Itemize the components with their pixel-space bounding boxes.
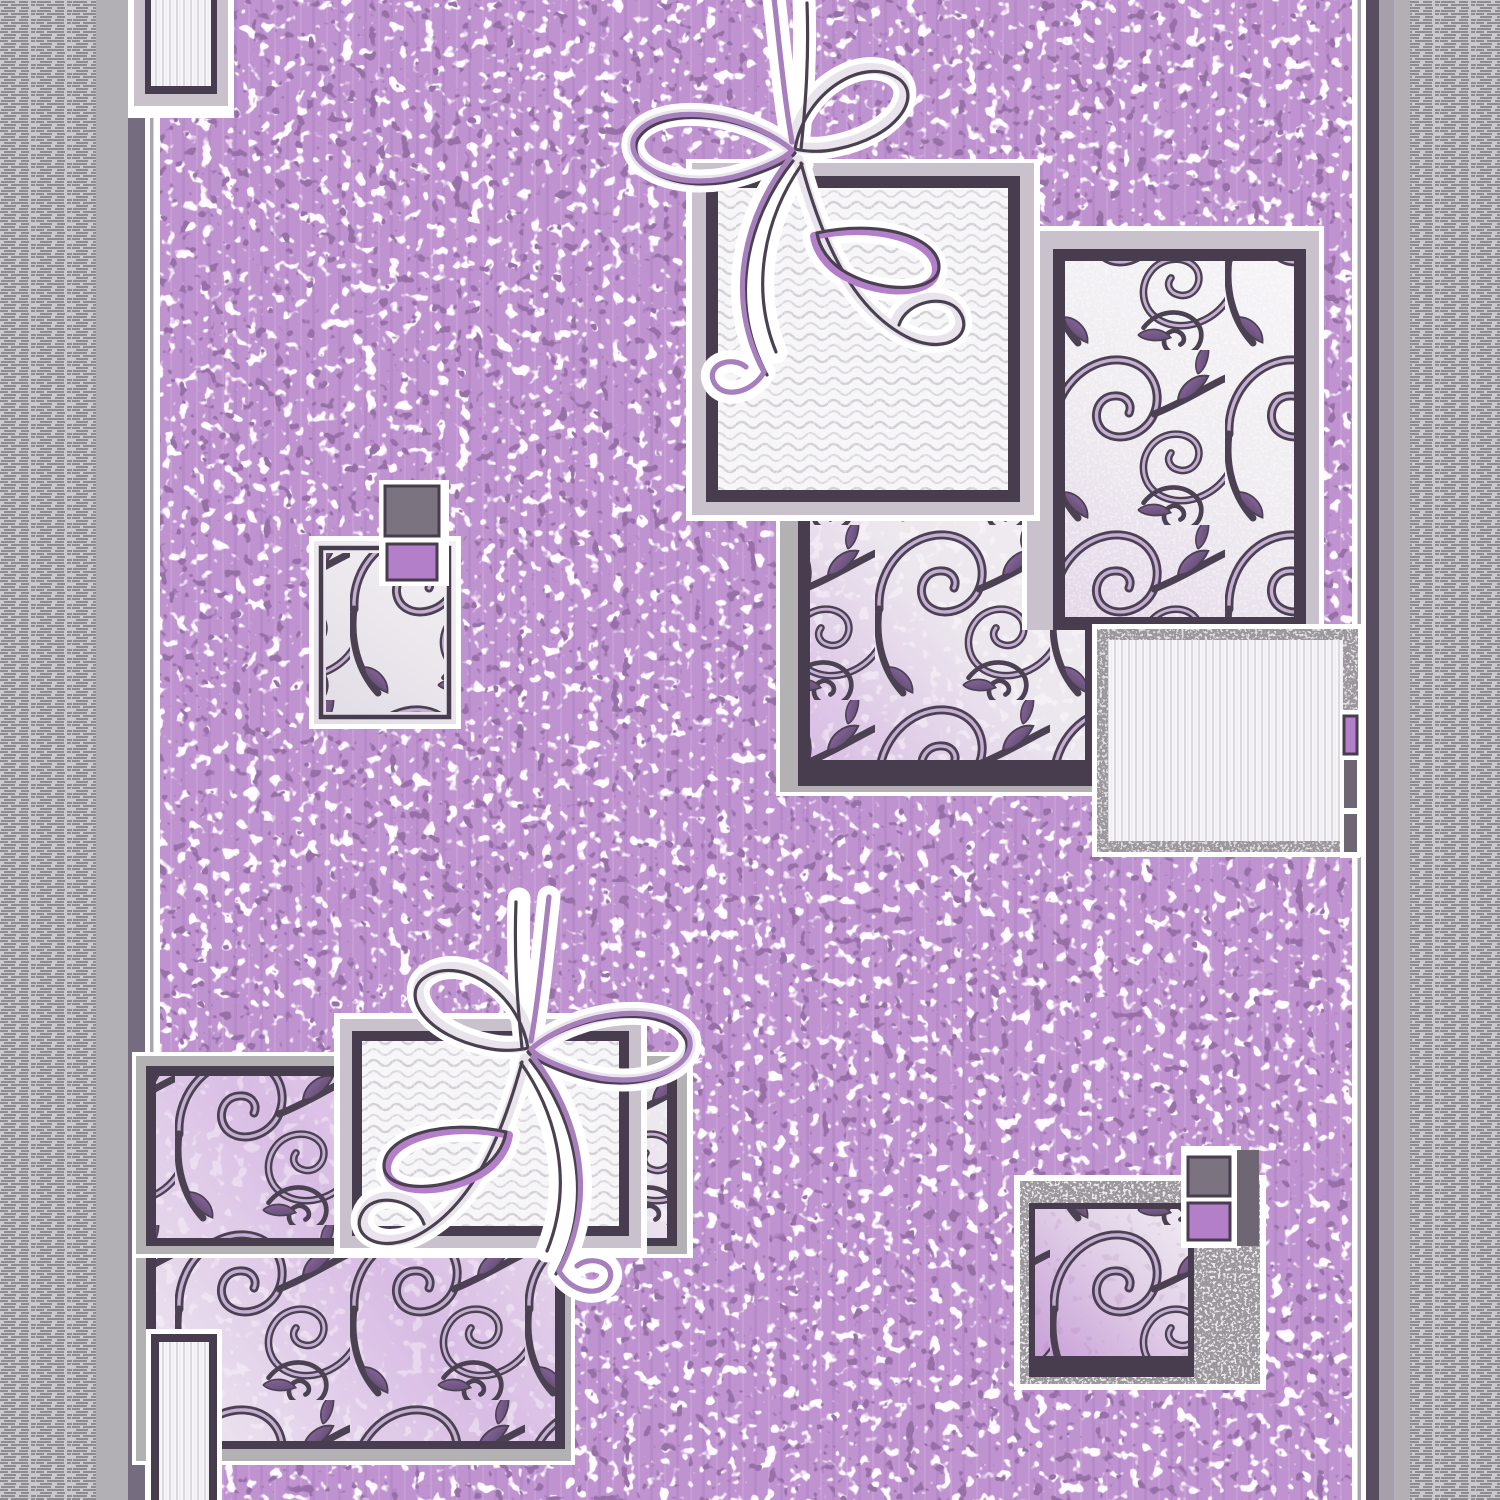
right-border [1352,0,1500,1500]
top-left-striped-square [128,0,234,118]
accent-purple-square [1188,1203,1230,1240]
right-frame-tabs [1340,710,1360,858]
right-striped-square [1092,624,1363,858]
right-border-lavender-stripe [1379,0,1394,1500]
right-border-plain-band [1394,0,1410,1500]
carpet-artwork [0,0,1500,1500]
top-right-scroll-square [1022,226,1324,630]
bottom-right-scroll-square [1014,1146,1266,1390]
bottom-left-striped-band [146,1329,222,1500]
accent-gray-square [1188,1157,1230,1196]
accent-squares-bottom-right [1181,1146,1259,1248]
right-border-dark-stripe [1366,0,1379,1500]
accent-purple-square [387,544,437,580]
left-border-plain-band [96,0,128,1500]
right-border-texture [1410,0,1500,1500]
accent-gray-square [385,486,439,536]
left-border-texture [0,0,96,1500]
carpet-canvas [0,0,1500,1500]
accent-squares-mid-left [379,480,449,586]
